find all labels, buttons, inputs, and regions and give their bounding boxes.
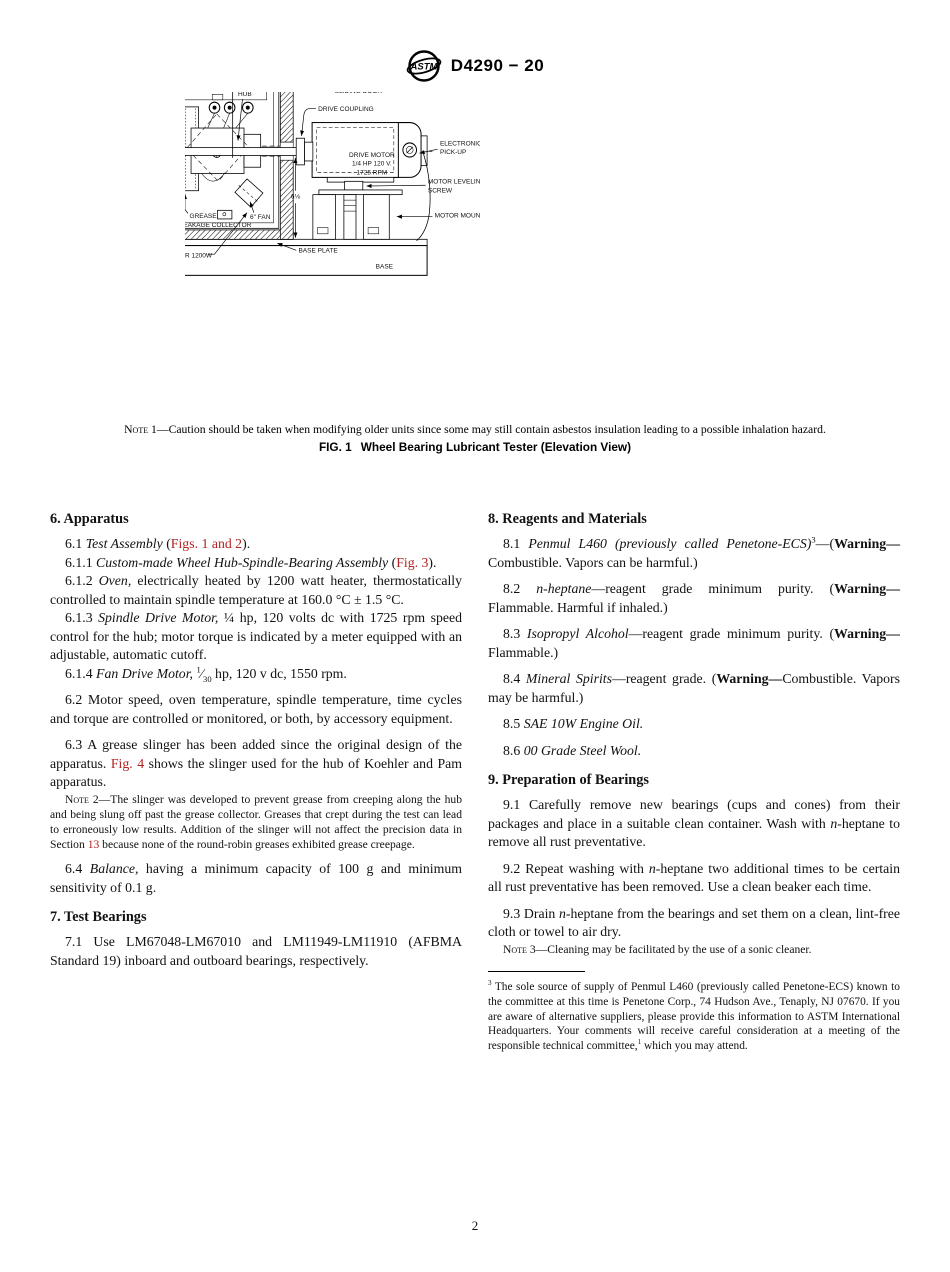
paragraph: 8.4 Mineral Spirits—reagent grade. (Warn… <box>488 670 900 707</box>
paragraph: 6.4 Balance, having a minimum capacity o… <box>50 860 462 897</box>
paragraph: 8.5 SAE 10W Engine Oil. <box>488 715 900 734</box>
section-heading: 6. Apparatus <box>50 511 462 528</box>
paragraph: 8.2 n-heptane—reagent grade minimum puri… <box>488 580 900 617</box>
drive-motor-label: DRIVE MOTOR <box>349 152 395 159</box>
motor-mount-label: MOTOR MOUNT <box>435 212 485 219</box>
figure-caption-title: Wheel Bearing Lubricant Tester (Elevatio… <box>361 440 631 454</box>
paragraph: 6.1.4 Fan Drive Motor, 1⁄30 hp, 120 v dc… <box>50 665 462 684</box>
sliding-door-label: SLIDING DOOR <box>335 92 382 95</box>
drive-coupling-label: DRIVE COUPLING <box>318 106 374 113</box>
electronic-pickup-label: ELECTRONIC <box>440 140 482 147</box>
figure-note: Note 1—Caution should be taken when modi… <box>40 423 910 436</box>
section-heading: 8. Reagents and Materials <box>488 511 900 528</box>
left-column: 6. Apparatus6.1 Test Assembly (Figs. 1 a… <box>50 511 462 970</box>
right-column: 8. Reagents and Materials8.1 Penmul L460… <box>488 511 900 1054</box>
cross-reference-link[interactable]: 13 <box>88 838 100 851</box>
fan-label: 6" FAN <box>250 214 271 221</box>
svg-text:LEAKAGE COLLECTOR: LEAKAGE COLLECTOR <box>185 222 252 229</box>
paragraph: 8.3 Isopropyl Alcohol—reagent grade mini… <box>488 625 900 662</box>
paragraph: 9.3 Drain n-heptane from the bearings an… <box>488 905 900 942</box>
paragraph: 6.1.1 Custom-made Wheel Hub-Spindle-Bear… <box>50 554 462 573</box>
note-paragraph: Note 3—Cleaning may be facilitated by th… <box>488 942 900 957</box>
cross-reference-link[interactable]: Fig. 3 <box>396 555 428 570</box>
svg-text:1/4 HP 120 V.: 1/4 HP 120 V. <box>352 161 392 168</box>
fan-blade <box>235 179 263 207</box>
base-label: BASE <box>376 263 394 270</box>
dimension-side-label: 6⅛ <box>291 193 301 200</box>
paragraph: 6.3 A grease slinger has been added sinc… <box>50 736 462 792</box>
astm-logo-text: ASTM <box>409 62 438 73</box>
footnote: 3 The sole source of supply of Penmul L4… <box>488 980 900 1055</box>
paragraph: 6.1.3 Spindle Drive Motor, ¼ hp, 120 vol… <box>50 609 462 665</box>
page-header: ASTM D4290 − 20 <box>0 48 950 84</box>
svg-text:1725 RPM: 1725 RPM <box>357 169 388 176</box>
document-designation: D4290 − 20 <box>451 56 544 76</box>
note-paragraph: Note 2—The slinger was developed to prev… <box>50 792 462 853</box>
figure-caption: FIG. 1Wheel Bearing Lubricant Tester (El… <box>0 440 950 454</box>
hub-label: HUB <box>238 92 252 98</box>
section-heading: 7. Test Bearings <box>50 909 462 926</box>
base-plate-label: BASE PLATE <box>298 248 338 255</box>
heater-label: HEATER 1200W <box>185 252 213 259</box>
paragraph: 8.6 00 Grade Steel Wool. <box>488 742 900 761</box>
paragraph: 9.2 Repeat washing with n-heptane two ad… <box>488 860 900 897</box>
svg-text:SCREW: SCREW <box>428 187 453 194</box>
figure-caption-label: FIG. 1 <box>319 440 352 454</box>
drive-coupling-part <box>296 138 304 165</box>
section-heading: 9. Preparation of Bearings <box>488 772 900 789</box>
footnote-rule <box>488 971 585 972</box>
paragraph: 7.1 Use LM67048-LM67010 and LM11949-LM11… <box>50 933 462 970</box>
drive-motor-assembly <box>296 123 430 241</box>
paragraph: 9.1 Carefully remove new bearings (cups … <box>488 796 900 852</box>
paragraph: 6.1.2 Oven, electrically heated by 1200 … <box>50 572 462 609</box>
motor-leveling-label: MOTOR LEVELING <box>428 179 486 186</box>
paragraph: 6.2 Motor speed, oven temperature, spind… <box>50 691 462 728</box>
cross-reference-link[interactable]: Fig. 4 <box>111 756 144 771</box>
astm-document-page: ASTM D4290 − 20 <box>0 0 950 1272</box>
grease-collector-label: GREASE <box>190 213 218 220</box>
paragraph: 6.1 Test Assembly (Figs. 1 and 2). <box>50 535 462 554</box>
leveling-screw-part <box>345 181 363 190</box>
page-number: 2 <box>0 1218 950 1234</box>
figure-1-drawing: 8¾ 12½ 6⅛ THERMOMETER FERRULE PROBE TRAN… <box>185 92 760 425</box>
svg-text:PICK-UP: PICK-UP <box>440 149 467 156</box>
cross-reference-link[interactable]: Figs. 1 and 2 <box>171 536 242 551</box>
collector-spout <box>218 210 232 219</box>
astm-logo-icon: ASTM <box>406 48 442 84</box>
paragraph: 8.1 Penmul L460 (previously called Penet… <box>488 535 900 572</box>
